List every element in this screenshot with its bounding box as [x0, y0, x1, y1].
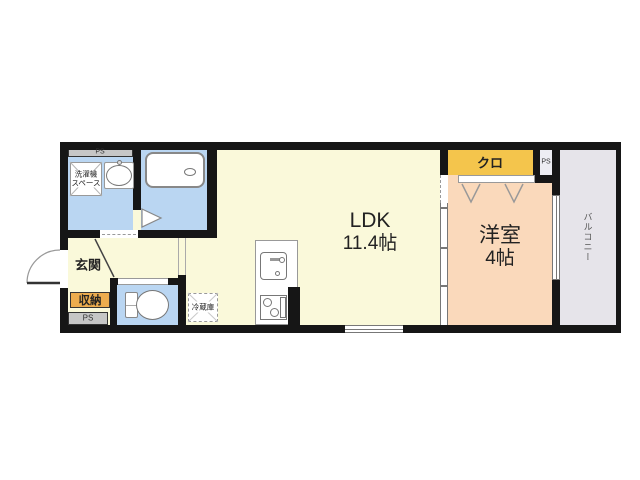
bedroom-label: 洋室 4帖 — [479, 224, 521, 270]
closet-door-track — [458, 175, 535, 183]
floorplan-canvas: PS 洗濯機 スペース 玄関 収納 PS 冷蔵庫 LDK 11.4帖 クロ PS… — [0, 0, 640, 480]
wall-toilet-left — [110, 278, 117, 325]
washer-space-line2: スペース — [71, 179, 100, 188]
wall-hall-stub — [178, 275, 186, 325]
wall-bath-ldk — [207, 142, 217, 238]
balcony-label: バルコニー — [582, 212, 595, 262]
window-bedroom — [552, 195, 560, 280]
floorplan: PS 洗濯機 スペース 玄関 収納 PS 冷蔵庫 LDK 11.4帖 クロ PS… — [60, 142, 621, 333]
bathtub-drain — [184, 168, 196, 176]
entrance-door-arc — [27, 250, 60, 283]
wall-slider-stub — [440, 142, 448, 175]
window-ldk — [345, 325, 403, 333]
washbasin-faucet-icon — [117, 160, 122, 165]
bedroom-name: 洋室 — [479, 224, 521, 247]
ps-right-label: PS — [541, 159, 550, 166]
wall-wash-bath — [133, 150, 141, 210]
wall-kitchen-stub — [288, 287, 300, 333]
bedroom-size: 4帖 — [479, 247, 521, 270]
entrance-label: 玄関 — [75, 255, 101, 274]
ps-top-label: PS — [95, 149, 104, 156]
hall-opening — [178, 238, 186, 275]
washbasin-bowl — [106, 165, 132, 186]
ldk-label: LDK 11.4帖 — [343, 209, 398, 255]
wall-closet-ps — [533, 142, 540, 175]
stove-grill — [280, 297, 286, 318]
sink-drain — [275, 271, 280, 276]
toilet-door — [118, 278, 168, 285]
ps-bottom-label: PS — [83, 314, 94, 323]
kitchen-faucet-knob — [279, 257, 285, 263]
sliding-door-washroom — [100, 230, 138, 238]
wall-bottom — [60, 325, 621, 333]
toilet-bowl — [136, 290, 169, 320]
ldk-name: LDK — [343, 209, 398, 232]
fridge-label: 冷蔵庫 — [192, 302, 215, 313]
stove-burner-1 — [263, 298, 272, 307]
wall-right — [616, 142, 621, 333]
ldk-size: 11.4帖 — [343, 232, 398, 255]
washer-space-label: 洗濯機 スペース — [71, 171, 100, 188]
wall-wet-bottom — [60, 230, 217, 238]
slider-dashed-track — [440, 175, 448, 203]
sliding-door-ldk-bedroom — [440, 203, 448, 325]
bathtub — [145, 152, 205, 188]
stove-burner-2 — [270, 308, 279, 317]
closet-label: クロ — [477, 153, 503, 172]
storage-label: 収納 — [79, 292, 102, 308]
